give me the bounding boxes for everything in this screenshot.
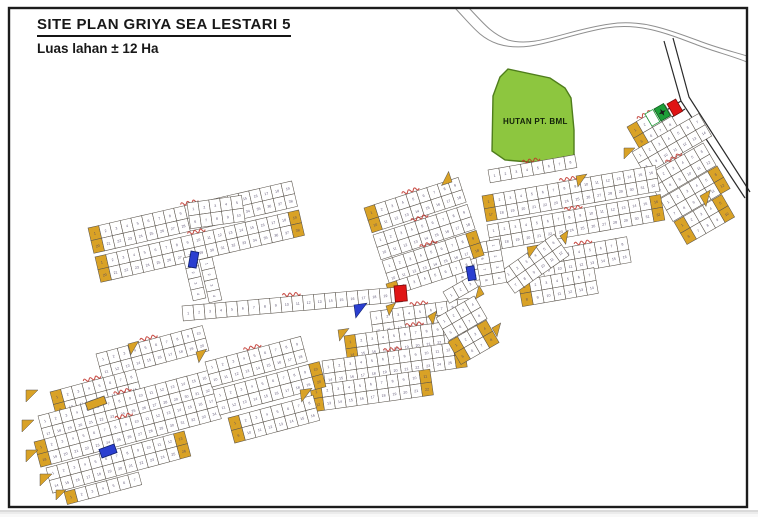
lot-number: 18	[381, 393, 386, 398]
lot-number: 20	[403, 390, 408, 395]
lot-number: 3	[209, 309, 211, 313]
lot-number: 24	[564, 199, 569, 204]
housing-blocks-layer: 1234567812345678910111213141234567891011…	[33, 102, 735, 505]
site-plan-page: HUTAN PT. BML 12345678123456789101112131…	[0, 0, 758, 531]
lot-number: 12	[610, 208, 615, 213]
lot-number: 24	[437, 362, 442, 367]
lot-number: 1	[187, 311, 189, 315]
lot-number: 16	[622, 255, 627, 260]
lot-number: 19	[383, 294, 387, 298]
lot-number: 2	[198, 310, 200, 314]
lot-number: 13	[317, 300, 321, 304]
lot-number: 19	[515, 238, 520, 243]
lot-number: 16	[350, 297, 354, 301]
corner-lot-wedge	[56, 490, 66, 500]
forest-label: HUTAN PT. BML	[503, 117, 568, 126]
lot-number: 10	[584, 182, 589, 187]
marker-red-lot	[394, 285, 407, 302]
lot-number: 13	[327, 401, 332, 406]
title-block: SITE PLAN GRIYA SEA LESTARI 5 Luas lahan…	[37, 16, 291, 56]
lot-number: 19	[392, 392, 397, 397]
lot-number: 31	[645, 215, 650, 220]
lot-number: 17	[489, 212, 494, 217]
lot-number: 14	[627, 175, 632, 180]
housing-strip: 1234567891011121314151617181920	[95, 322, 209, 379]
lot-number: 12	[316, 403, 321, 408]
lot-number: 11	[557, 292, 561, 297]
lot-number: 18	[372, 372, 377, 377]
lot-number: 10	[285, 303, 289, 307]
lot-number: 12	[605, 179, 610, 184]
forest-layer: HUTAN PT. BML	[492, 69, 574, 163]
lot-number: 15	[643, 202, 648, 207]
lot-number: 17	[361, 373, 366, 378]
lot-number: 17	[370, 395, 375, 400]
lot-number: 23	[559, 230, 564, 235]
lot-number: 10	[589, 211, 594, 216]
lot-number: 30	[629, 187, 634, 192]
lot-number: 21	[404, 367, 409, 372]
corner-lot-wedge	[22, 420, 34, 432]
lot-number: 20	[526, 236, 531, 241]
lot-number: 22	[543, 203, 548, 208]
lot-number: 26	[586, 195, 591, 200]
plan-area-label: Luas lahan ± 12 Ha	[37, 41, 291, 56]
lot-number: 20	[521, 207, 526, 212]
lot-number: 14	[338, 400, 343, 405]
lot-number: 4	[220, 308, 222, 312]
lot-number: 10	[412, 376, 417, 381]
lot-number: 11	[595, 180, 599, 185]
lot-number: 12	[307, 301, 311, 305]
lot-number: 11	[435, 350, 439, 354]
lot-number: 32	[651, 184, 656, 189]
lot-number: 28	[613, 220, 618, 225]
lot-number: 29	[624, 218, 629, 223]
lot-number: 15	[638, 173, 643, 178]
lot-number: 25	[580, 226, 585, 231]
lot-number: 16	[360, 397, 365, 402]
lot-number: 20	[393, 368, 398, 373]
lot-number: 21	[537, 234, 542, 239]
lot-number: 15	[612, 257, 617, 262]
road	[469, 8, 747, 56]
lot-number: 15	[339, 376, 344, 381]
lot-number: 11	[600, 209, 604, 214]
lot-number: 11	[423, 375, 427, 379]
lot-number: 16	[350, 375, 355, 380]
lot-number: 22	[425, 387, 430, 392]
lot-number: 25	[575, 197, 580, 202]
lot-number: 27	[602, 222, 607, 227]
lot-number: 31	[640, 186, 645, 191]
lot-number: 22	[415, 365, 420, 370]
lot-number: 15	[349, 398, 354, 403]
lot-number: 9	[275, 304, 277, 308]
lot-number: 17	[361, 296, 365, 300]
lot-number: 11	[568, 265, 572, 270]
lot-number: 26	[591, 224, 596, 229]
marker-blue-lot	[354, 303, 369, 318]
lot-number: 16	[654, 200, 659, 205]
lot-number: 18	[499, 210, 504, 215]
lot-number: 23	[554, 201, 559, 206]
lot-number: 15	[339, 298, 343, 302]
lot-number: 7	[253, 306, 255, 310]
lot-number: 32	[656, 213, 661, 218]
lot-number: 25	[448, 361, 453, 366]
corner-lot-wedge	[26, 450, 38, 462]
lot-number: 14	[590, 286, 595, 291]
lot-number: 13	[616, 177, 621, 182]
lot-number: 6	[242, 307, 244, 311]
lot-number: 14	[632, 204, 637, 209]
lot-number: 21	[532, 205, 537, 210]
lot-number: 21	[414, 389, 419, 394]
lot-number: 30	[634, 216, 639, 221]
page-shadow	[0, 510, 758, 517]
lot-number: 10	[424, 351, 429, 356]
lot-number: 24	[569, 228, 574, 233]
lot-number: 5	[231, 307, 233, 311]
lot-number: 10	[546, 294, 551, 299]
lot-number: 14	[328, 299, 332, 303]
lot-number: 8	[264, 305, 266, 309]
lot-number: 19	[510, 209, 515, 214]
lot-number: 10	[237, 214, 242, 219]
lot-number: 13	[590, 261, 595, 266]
lot-number: 10	[557, 266, 562, 271]
lot-number: 12	[568, 290, 573, 295]
lot-number: 14	[328, 378, 333, 383]
lot-number: 28	[608, 191, 613, 196]
housing-strip: 12345678910	[187, 195, 245, 228]
lot-number: 27	[597, 193, 602, 198]
road	[455, 8, 747, 62]
lot-number: 19	[382, 370, 387, 375]
lot-number: 13	[621, 206, 626, 211]
forest-area	[492, 69, 574, 163]
lot-number: 16	[649, 171, 654, 176]
lot-number: 18	[372, 295, 376, 299]
plan-title: SITE PLAN GRIYA SEA LESTARI 5	[37, 16, 291, 37]
corner-lot-wedge	[26, 390, 38, 402]
lot-number: 29	[619, 189, 624, 194]
lot-number: 23	[426, 364, 431, 369]
lot-number: 11	[296, 302, 300, 306]
lot-number: 18	[504, 239, 509, 244]
lot-number: 13	[579, 288, 584, 293]
lot-number: 14	[601, 259, 606, 264]
lot-number: 12	[579, 263, 584, 268]
lot-number: 12	[446, 348, 451, 353]
site-plan-map: HUTAN PT. BML 12345678123456789101112131…	[0, 0, 758, 531]
